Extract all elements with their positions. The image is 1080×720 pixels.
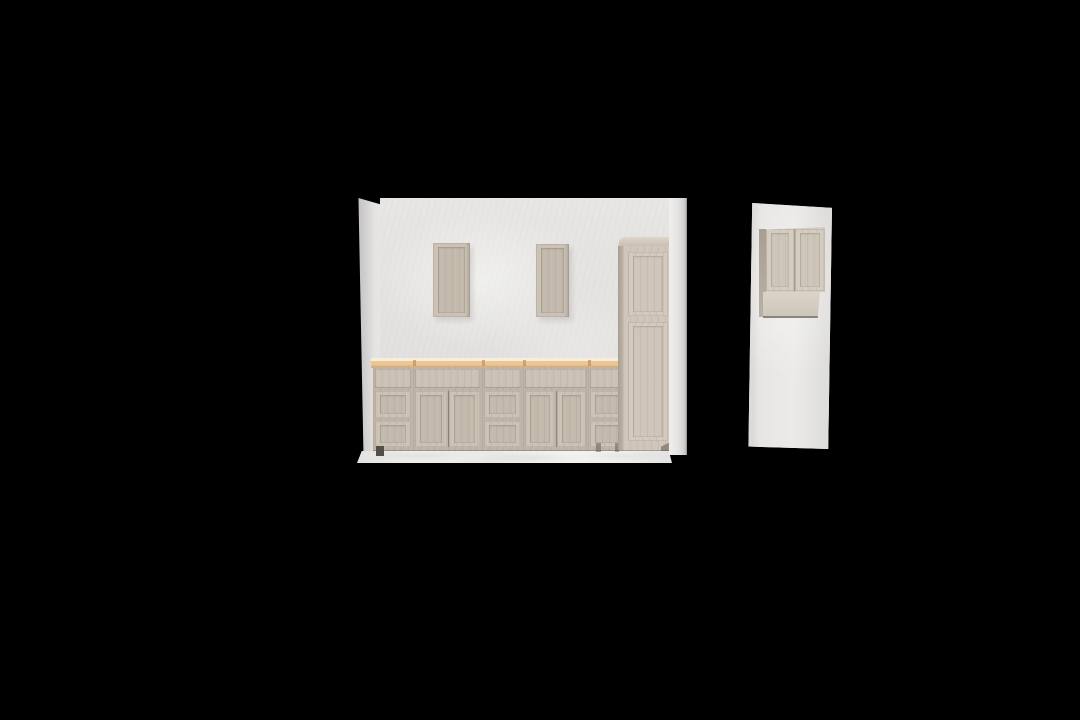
countertop-seam: [588, 360, 591, 366]
door-panel: [454, 395, 476, 443]
drawer-panel: [595, 425, 619, 443]
cabinet-edge-shadow: [465, 243, 470, 317]
drawer-front: [375, 391, 411, 418]
pantry-upper-door: [628, 252, 668, 316]
base-cabinet-3-drawer[interactable]: [373, 367, 414, 451]
tall-pantry-cabinet[interactable]: [623, 246, 673, 451]
cabinet-door: [449, 391, 481, 447]
floor: [357, 451, 672, 463]
drawer-front: [375, 421, 411, 447]
wall-cabinet-single-door-left[interactable]: [433, 243, 470, 317]
door-gap-line: [448, 391, 449, 447]
door-gap-line: [556, 391, 557, 447]
countertop-seam: [413, 360, 416, 366]
door-panel: [562, 395, 582, 443]
cabinet-door: [525, 391, 555, 447]
drawer-front: [525, 369, 586, 388]
cabinet-door: [415, 391, 447, 447]
door-panel: [800, 233, 820, 287]
cabinet-foot: [596, 443, 601, 452]
base-cabinet-2-door[interactable]: [523, 367, 589, 451]
drawer-front: [484, 421, 521, 447]
door-panel: [633, 326, 663, 437]
door-panel: [438, 247, 465, 313]
pantry-lower-door: [628, 322, 668, 441]
kitchen-3d-viewport[interactable]: [0, 0, 1080, 720]
drawer-front: [415, 369, 480, 388]
wall-cabinet-single-door-right[interactable]: [536, 244, 569, 317]
cabinet-door: [795, 229, 825, 291]
drawer-panel: [380, 425, 406, 443]
base-cabinet-3-drawer[interactable]: [482, 367, 524, 451]
drawer-panel: [489, 395, 516, 414]
cabinet-foot: [376, 446, 384, 456]
door-panel: [771, 233, 789, 287]
drawer-front: [375, 369, 411, 388]
door-gap-line: [794, 229, 795, 292]
drawer-front: [484, 369, 521, 388]
drawer-front: [484, 391, 521, 418]
cabinet-door: [766, 229, 794, 291]
drawer-panel: [595, 395, 619, 414]
door-panel: [420, 395, 442, 443]
door-panel: [541, 248, 564, 313]
cabinet-edge-shadow: [564, 244, 569, 317]
drawer-panel: [489, 425, 516, 443]
base-cabinet-2-door[interactable]: [413, 367, 483, 451]
drawer-panel: [380, 395, 406, 414]
door-panel: [633, 256, 663, 312]
side-wall-cabinet-2-door[interactable]: [766, 227, 825, 292]
right-return-wall: [669, 198, 687, 455]
countertop-seam: [482, 360, 485, 366]
door-panel: [530, 395, 550, 443]
cabinet-door: [557, 391, 587, 447]
countertop-seam: [523, 360, 526, 366]
side-cabinet-underside: [763, 292, 820, 318]
